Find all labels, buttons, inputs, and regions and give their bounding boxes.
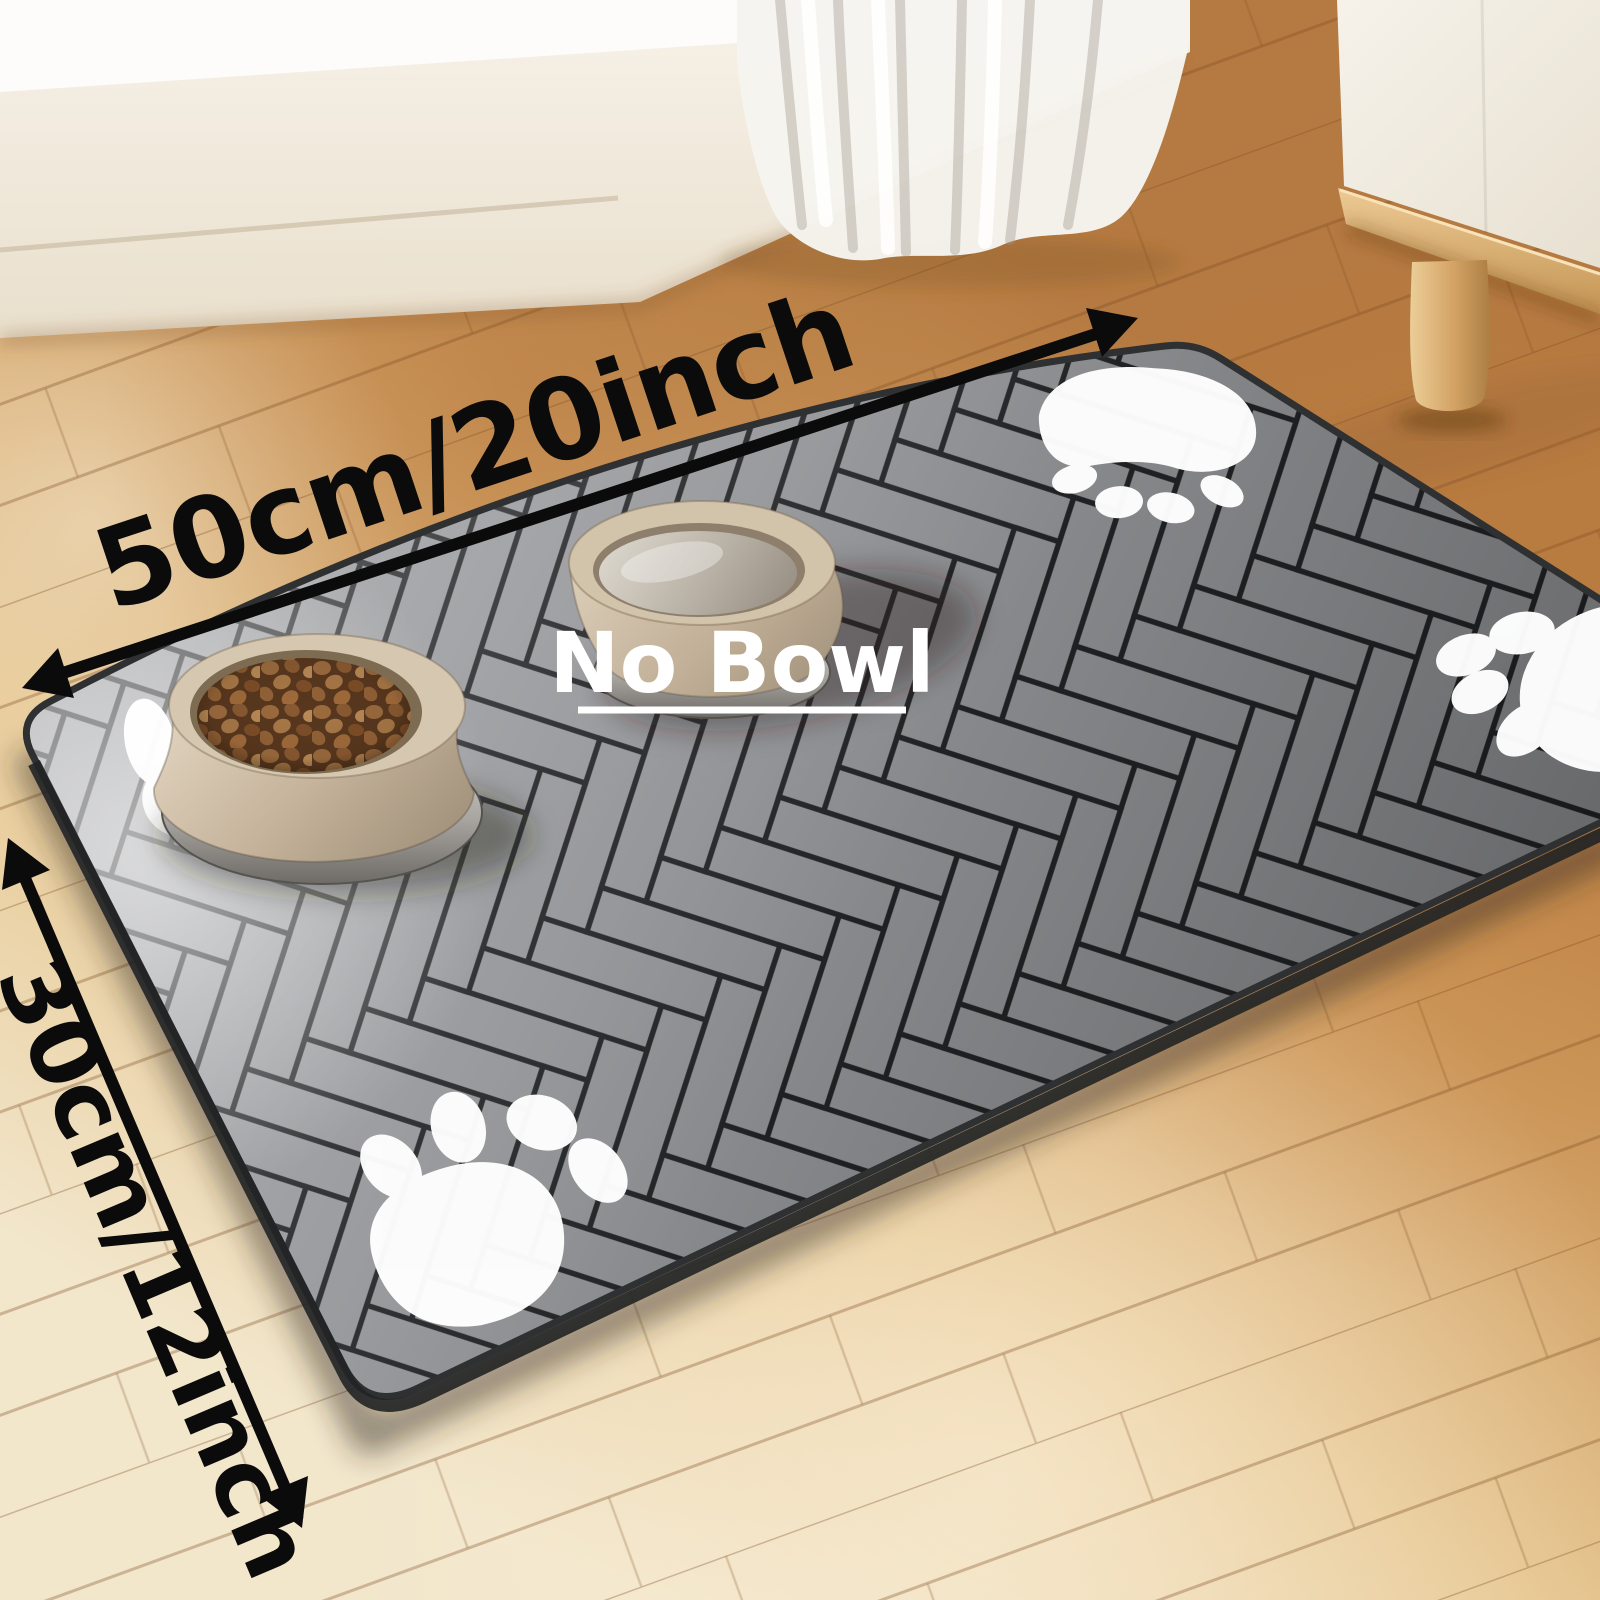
curtain (720, 0, 1190, 288)
food-bowl (154, 634, 482, 884)
no-bowl-label: No Bowl (549, 614, 934, 712)
no-bowl-text: No Bowl (549, 614, 934, 712)
cabinet-leg (1410, 260, 1490, 411)
product-photo: 50cm/20inch 30cm/12inch No Bowl (0, 0, 1600, 1600)
